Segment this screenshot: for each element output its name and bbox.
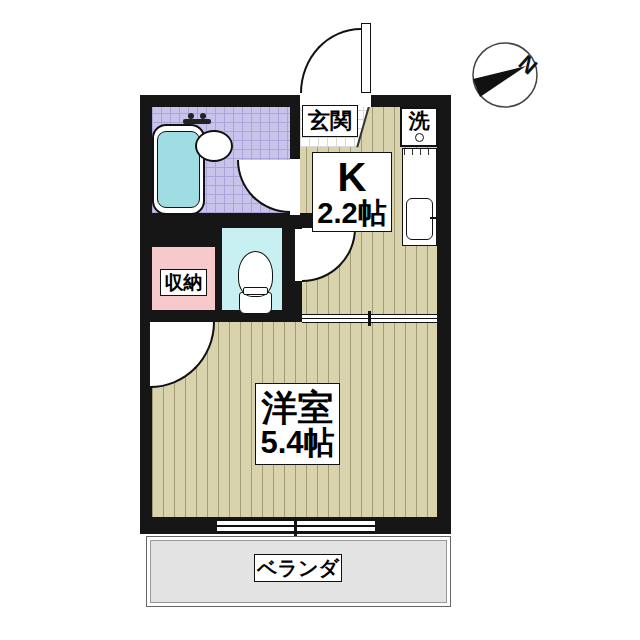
kitchen-sink (406, 198, 433, 240)
compass-icon: N (470, 38, 542, 110)
wall-storage-bottom (140, 310, 302, 322)
laundry-label: 洗 (402, 109, 436, 132)
balcony-label-box: ベランダ (254, 554, 342, 582)
bath-faucet-icon (183, 119, 211, 124)
kitchen-room-partition (302, 314, 437, 323)
wall-right (437, 95, 451, 534)
kitchen-label-line1: K (338, 156, 367, 198)
entrance-label-box: 玄関 (302, 105, 358, 137)
compass: N (470, 38, 542, 110)
kitchen-label-line2: 2.2帖 (317, 198, 386, 228)
toilet-door-leaf (295, 228, 302, 282)
front-door-swing (300, 28, 361, 93)
washer-drain-icon (415, 133, 424, 142)
floor-plan: 洗 玄関 K 2.2帖 収納 洋室 5.4帖 ベランダ N (0, 0, 640, 640)
partition-center-tick (368, 311, 371, 326)
main-room-label-line2: 5.4帖 (260, 427, 334, 460)
entrance-label: 玄関 (308, 109, 352, 132)
main-room-label-line1: 洋室 (262, 389, 334, 427)
balcony-label: ベランダ (257, 558, 339, 579)
bathroom-door-leaf (290, 158, 300, 215)
main-room-label-box: 洋室 5.4帖 (255, 383, 340, 465)
bath-faucet-knob-left-icon (188, 113, 194, 119)
storage-label-box: 収納 (160, 269, 207, 296)
wall-storage-toilet (215, 247, 222, 313)
kitchen-faucet-icon (430, 217, 438, 219)
wash-basin (195, 130, 233, 162)
wall-storage-top (140, 228, 222, 247)
laundry-space: 洗 (400, 107, 438, 147)
bathtub-water (157, 131, 200, 208)
kitchen-counter-ticks (404, 149, 435, 155)
balcony-window (217, 519, 375, 533)
toilet-seat-hinge (243, 287, 268, 295)
storage-label: 収納 (165, 273, 203, 293)
kitchen-label-box: K 2.2帖 (312, 152, 392, 232)
front-door-leaf (361, 23, 371, 93)
wall-bathroom-bottom (140, 213, 312, 228)
bath-faucet-knob-right-icon (200, 113, 206, 119)
window-center-tick (294, 517, 297, 536)
